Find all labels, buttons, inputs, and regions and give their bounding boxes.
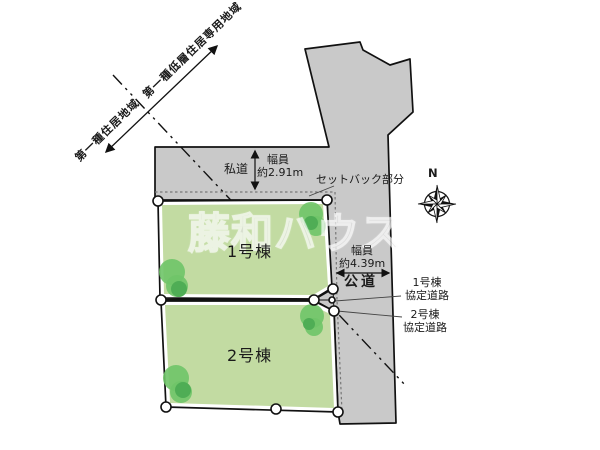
- lot-2-label: 2号棟: [227, 347, 272, 366]
- agreement-road-2-label: 2号棟 協定道路: [399, 309, 451, 335]
- setback-label: セットバック部分: [316, 174, 404, 187]
- width-value: 約4.39m: [339, 258, 385, 271]
- agreement-road-1-label: 1号棟 協定道路: [401, 277, 453, 303]
- private-road-label: 私道: [224, 162, 248, 176]
- site-plan: 藤和ハウス 第一種住居地域 第一種低層住居専用地域 私道 幅員 約2.91m セ…: [0, 0, 600, 450]
- agreement-road-1-line2: 協定道路: [401, 290, 453, 303]
- zoning-extent-arrow: [106, 46, 217, 152]
- private-road-width-label: 幅員 約2.91m: [257, 154, 299, 180]
- compass-north-label: N: [428, 167, 438, 181]
- public-road-width-label: 幅員 約4.39m: [339, 245, 385, 271]
- agreement-road-2-line2: 協定道路: [399, 322, 451, 335]
- width-value: 約2.91m: [257, 167, 299, 180]
- public-road-label: 公道: [344, 274, 378, 291]
- compass-rose-icon: [418, 185, 456, 223]
- lot-1-label: 1号棟: [227, 243, 272, 262]
